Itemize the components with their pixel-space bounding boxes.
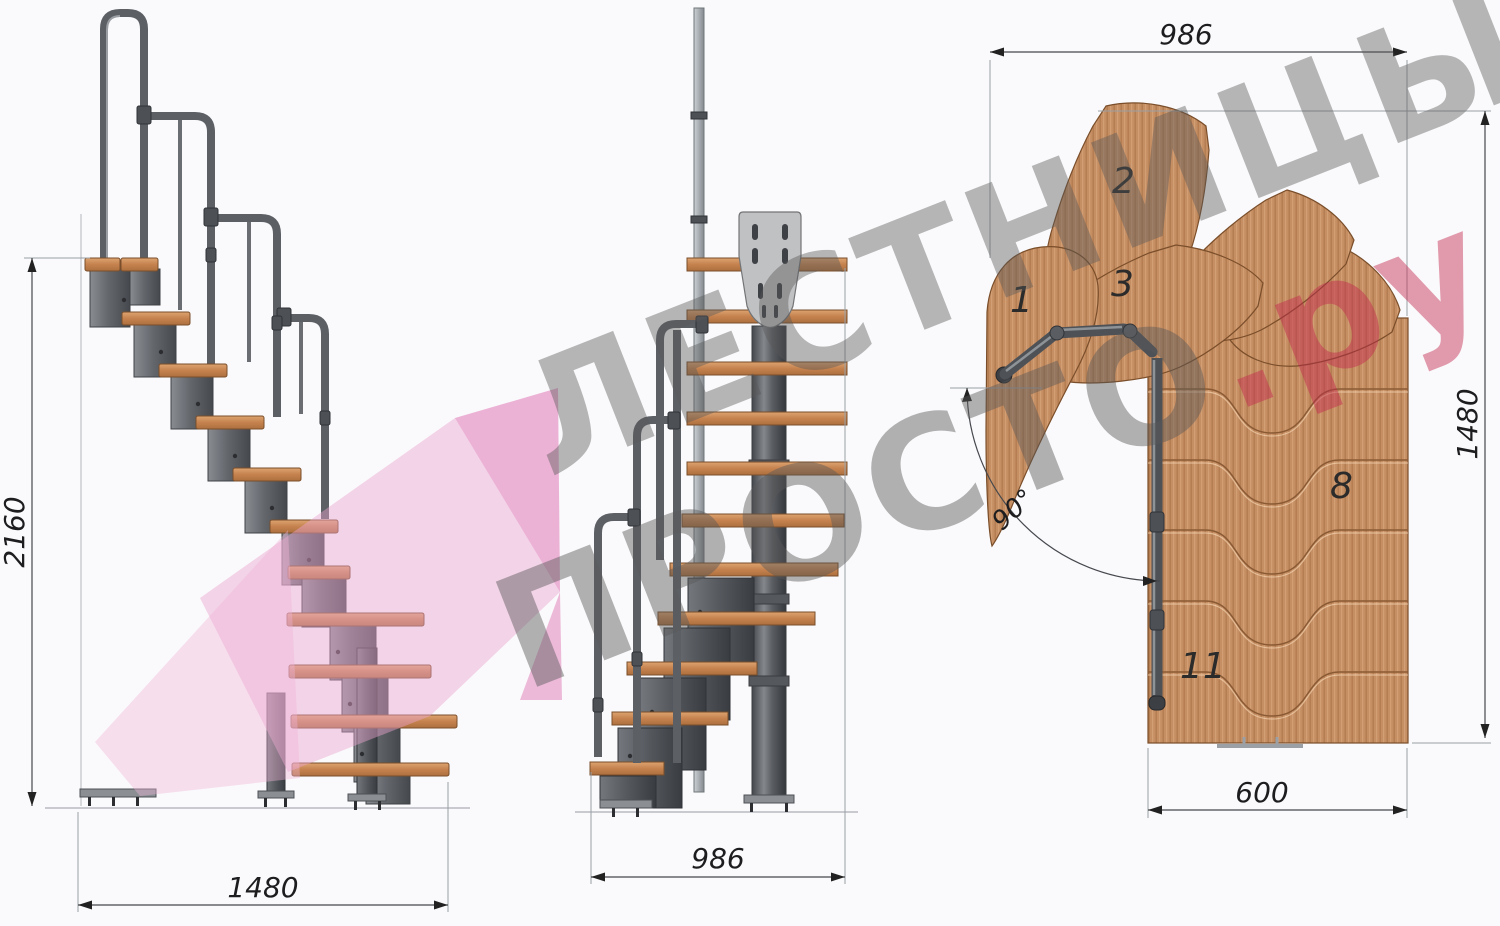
step-label-11: 11 xyxy=(1180,646,1226,687)
dim-text-986-plan: 986 xyxy=(1159,18,1212,51)
dim-text-600: 600 xyxy=(1235,776,1288,809)
drawing-canvas: 1 2 3 8 11 xyxy=(0,0,1500,926)
dim-plan-bottom: 600 xyxy=(1148,748,1407,818)
dim-text-1480-plan: 1480 xyxy=(1451,388,1484,459)
staircase-drawing: 1 2 3 8 11 xyxy=(0,0,1500,926)
step-label-8: 8 xyxy=(1330,466,1353,507)
dim-text-2160: 2160 xyxy=(0,496,31,567)
dim-side-height: 2160 xyxy=(0,258,90,806)
dim-text-986-front: 986 xyxy=(691,842,744,875)
dim-text-1480-side: 1480 xyxy=(227,871,298,904)
